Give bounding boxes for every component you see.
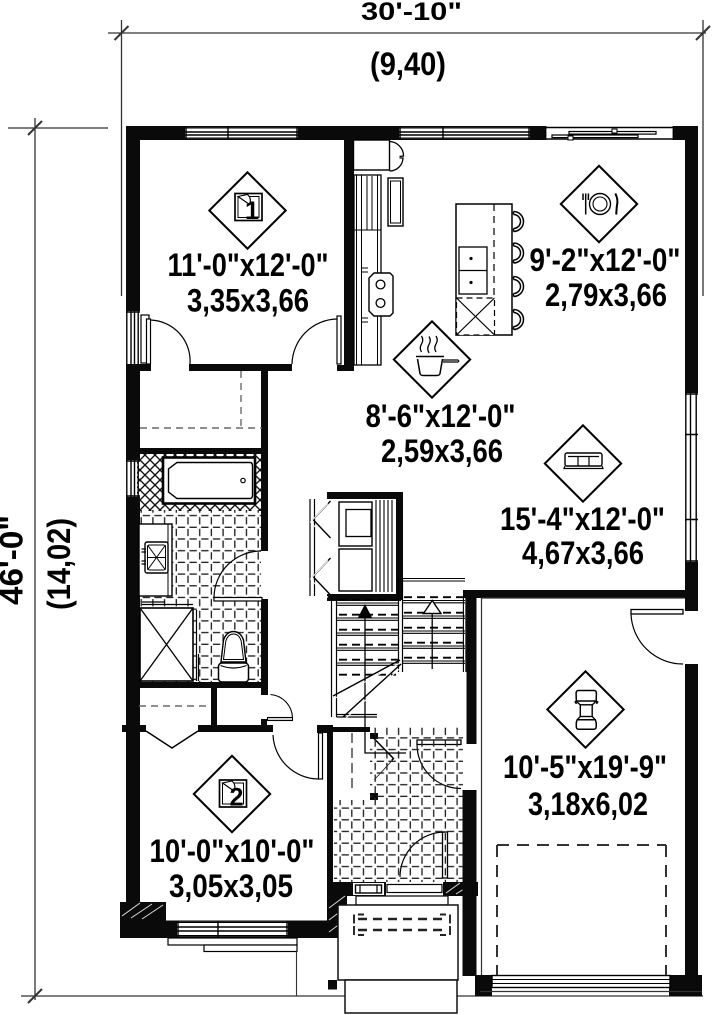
svg-text:3,05x3,05: 3,05x3,05 — [169, 868, 293, 904]
svg-text:3,18x6,02: 3,18x6,02 — [528, 786, 648, 822]
svg-text:2: 2 — [230, 784, 244, 812]
svg-text:2,79x3,66: 2,79x3,66 — [545, 277, 667, 313]
svg-text:10'-0"x10'-0": 10'-0"x10'-0" — [150, 833, 315, 869]
svg-text:3,35x3,66: 3,35x3,66 — [187, 283, 309, 319]
svg-text:10'-5"x19'-9": 10'-5"x19'-9" — [503, 749, 667, 785]
svg-text:11'-0"x12'-0": 11'-0"x12'-0" — [168, 247, 329, 283]
svg-text:(9,40): (9,40) — [370, 46, 446, 82]
svg-text:15'-4"x12'-0": 15'-4"x12'-0" — [500, 501, 665, 537]
svg-text:30'-10": 30'-10" — [361, 0, 462, 26]
svg-text:8'-6"x12'-0": 8'-6"x12'-0" — [366, 398, 516, 434]
svg-text:4,67x3,66: 4,67x3,66 — [522, 535, 644, 571]
svg-text:46'-0": 46'-0" — [0, 515, 30, 605]
svg-text:9'-2"x12'-0": 9'-2"x12'-0" — [530, 242, 681, 278]
svg-text:(14,02): (14,02) — [41, 518, 77, 610]
svg-text:2,59x3,66: 2,59x3,66 — [381, 433, 503, 469]
svg-text:1: 1 — [245, 197, 259, 225]
